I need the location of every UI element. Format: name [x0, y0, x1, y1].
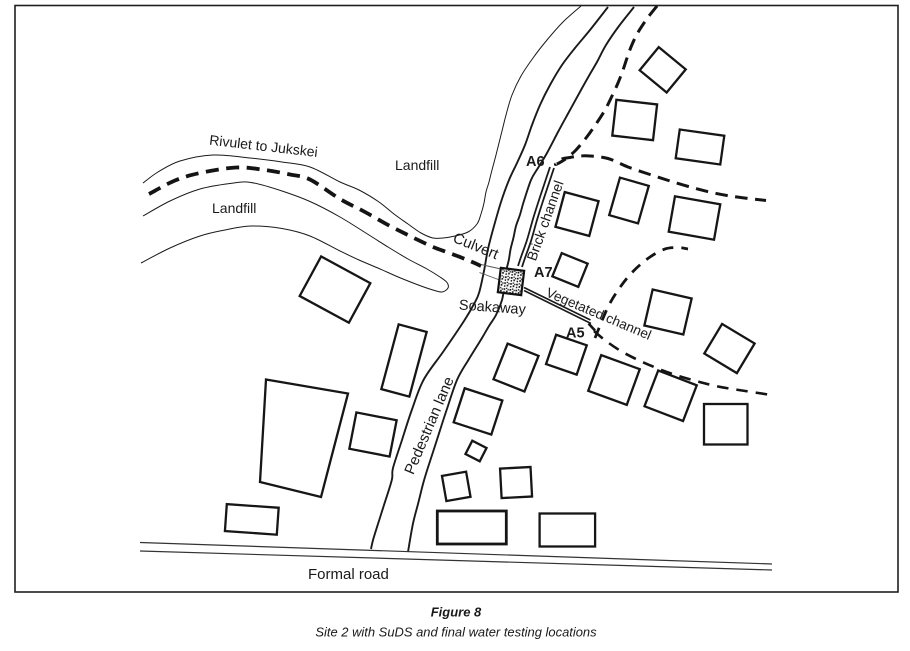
svg-text:A5: A5	[566, 326, 585, 342]
svg-text:Landfill: Landfill	[395, 157, 439, 173]
svg-text:A6: A6	[526, 154, 545, 170]
svg-text:Figure 8: Figure 8	[431, 605, 482, 620]
svg-text:Formal road: Formal road	[308, 566, 389, 583]
svg-text:Site 2 with SuDS and final wat: Site 2 with SuDS and final water testing…	[315, 625, 597, 640]
svg-text:A7: A7	[534, 265, 553, 281]
svg-text:Landfill: Landfill	[212, 200, 256, 216]
